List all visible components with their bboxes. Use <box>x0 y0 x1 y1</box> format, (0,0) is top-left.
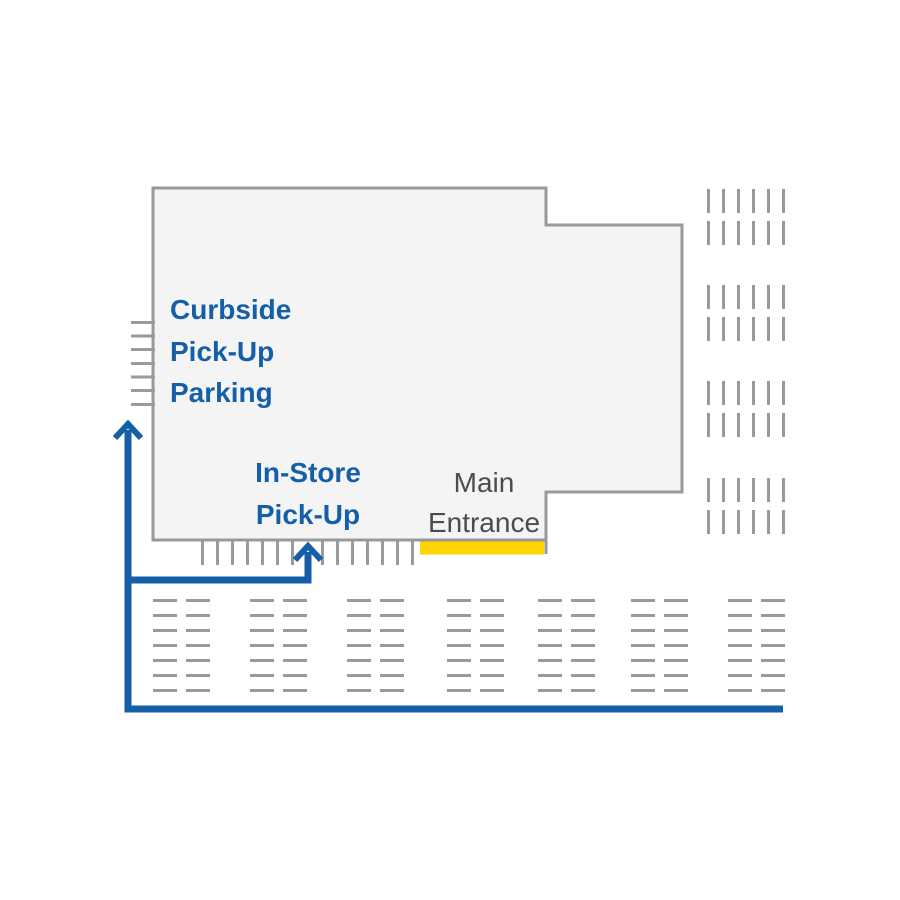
bottom-lot-parking-space-line <box>631 659 655 662</box>
in-store-parking-space-line <box>261 541 264 565</box>
bottom-lot-parking-space-line <box>761 674 785 677</box>
bottom-lot-parking-space-line <box>250 629 274 632</box>
bottom-lot-parking-space-line <box>631 599 655 602</box>
bottom-lot-parking-space-line <box>480 674 504 677</box>
bottom-lot-parking-space-line <box>761 644 785 647</box>
bottom-lot-parking-space-line <box>728 674 752 677</box>
right-lot-parking-space-line <box>707 413 710 437</box>
in-store-parking-space-line <box>351 541 354 565</box>
bottom-lot-parking-space-line <box>380 599 404 602</box>
bottom-lot-parking-space-line <box>538 614 562 617</box>
site-map-graphics <box>0 0 900 900</box>
bottom-lot-parking-space-line <box>664 614 688 617</box>
right-lot-parking-space-line <box>782 317 785 341</box>
curbside-parking-space-line <box>131 321 155 324</box>
main-entrance-label-line-2: Entrance <box>384 503 584 543</box>
bottom-lot-parking-space-line <box>538 629 562 632</box>
bottom-lot-parking-space-line <box>571 644 595 647</box>
bottom-lot-parking-space-line <box>728 629 752 632</box>
bottom-lot-parking-space-line <box>447 629 471 632</box>
bottom-lot-parking-space-line <box>728 614 752 617</box>
bottom-lot-parking-space-line <box>728 689 752 692</box>
right-lot-parking-space-line <box>767 317 770 341</box>
right-lot-parking-space-line <box>707 510 710 534</box>
bottom-lot-parking-space-line <box>480 644 504 647</box>
bottom-lot-parking-space-line <box>571 629 595 632</box>
in-store-parking-space-line <box>381 541 384 565</box>
in-store-parking-space-line <box>336 541 339 565</box>
right-lot-parking-space-line <box>737 381 740 405</box>
bottom-lot-parking-space-line <box>153 614 177 617</box>
in-store-parking-space-line <box>201 541 204 565</box>
main-entrance-label: Main Entrance <box>384 463 584 543</box>
in-store-parking-space-line <box>321 541 324 565</box>
bottom-lot-parking-space-line <box>250 659 274 662</box>
right-lot-parking-space-line <box>752 317 755 341</box>
bottom-lot-parking-space-line <box>153 674 177 677</box>
bottom-lot-parking-space-line <box>480 614 504 617</box>
bottom-lot-parking-space-line <box>480 689 504 692</box>
bottom-lot-parking-space-line <box>480 599 504 602</box>
right-lot-parking-space-line <box>767 510 770 534</box>
right-lot-parking-space-line <box>752 413 755 437</box>
bottom-lot-parking-space-line <box>664 644 688 647</box>
bottom-lot-parking-space-line <box>153 629 177 632</box>
right-lot-parking-space-line <box>752 221 755 245</box>
bottom-lot-parking-space-line <box>283 614 307 617</box>
bottom-lot-parking-space-line <box>664 659 688 662</box>
bottom-lot-parking-space-line <box>631 629 655 632</box>
right-lot-parking-space-line <box>752 189 755 213</box>
in-store-pickup-label: In-Store Pick-Up <box>208 452 408 536</box>
right-lot-parking-space-line <box>782 221 785 245</box>
bottom-lot-parking-space-line <box>153 689 177 692</box>
bottom-lot-parking-space-line <box>728 644 752 647</box>
right-lot-parking-space-line <box>782 510 785 534</box>
bottom-lot-parking-space-line <box>664 689 688 692</box>
right-lot-parking-space-line <box>767 413 770 437</box>
curbside-pickup-parking-label: Curbside Pick-Up Parking <box>170 289 291 414</box>
bottom-lot-parking-space-line <box>283 629 307 632</box>
bottom-lot-parking-space-line <box>571 674 595 677</box>
right-lot-parking-space-line <box>737 189 740 213</box>
bottom-lot-parking-space-line <box>347 599 371 602</box>
right-lot-parking-space-line <box>707 381 710 405</box>
right-lot-parking-space-line <box>722 285 725 309</box>
curbside-label-line-1: Curbside <box>170 289 291 331</box>
right-lot-parking-space-line <box>707 221 710 245</box>
right-lot-parking-space-line <box>707 317 710 341</box>
bottom-lot-parking-space-line <box>631 674 655 677</box>
curbside-parking-space-line <box>131 335 155 338</box>
in-store-parking-space-line <box>396 541 399 565</box>
bottom-lot-parking-space-line <box>153 599 177 602</box>
curbside-label-line-3: Parking <box>170 372 291 414</box>
bottom-lot-parking-space-line <box>538 659 562 662</box>
bottom-lot-parking-space-line <box>571 599 595 602</box>
bottom-lot-parking-space-line <box>761 629 785 632</box>
bottom-lot-parking-space-line <box>347 689 371 692</box>
bottom-lot-parking-space-line <box>283 659 307 662</box>
bottom-lot-parking-space-line <box>250 674 274 677</box>
main-entrance-label-line-1: Main <box>384 463 584 503</box>
right-lot-parking-space-line <box>737 510 740 534</box>
curbside-parking-space-line <box>131 389 155 392</box>
bottom-lot-parking-space-line <box>631 614 655 617</box>
right-lot-parking-space-line <box>767 381 770 405</box>
bottom-lot-parking-space-line <box>761 599 785 602</box>
in-store-parking-space-line <box>246 541 249 565</box>
bottom-lot-parking-space-line <box>631 689 655 692</box>
right-lot-parking-space-line <box>722 381 725 405</box>
right-lot-parking-space-line <box>767 478 770 502</box>
bottom-lot-parking-space-line <box>250 614 274 617</box>
bottom-lot-parking-space-line <box>283 689 307 692</box>
bottom-lot-parking-space-line <box>538 644 562 647</box>
right-lot-parking-space-line <box>737 413 740 437</box>
in-store-parking-space-line <box>366 541 369 565</box>
curbside-pickup-site-map: Curbside Pick-Up Parking In-Store Pick-U… <box>0 0 900 900</box>
bottom-lot-parking-space-line <box>761 659 785 662</box>
main-entrance-bar <box>420 542 544 555</box>
right-lot-parking-space-line <box>752 478 755 502</box>
bottom-lot-parking-space-line <box>761 614 785 617</box>
right-lot-parking-space-line <box>767 189 770 213</box>
bottom-lot-parking-space-line <box>186 689 210 692</box>
bottom-lot-parking-space-line <box>186 644 210 647</box>
bottom-lot-parking-space-line <box>480 659 504 662</box>
bottom-lot-parking-space-line <box>447 614 471 617</box>
bottom-lot-parking-space-line <box>347 644 371 647</box>
bottom-lot-parking-space-line <box>380 659 404 662</box>
bottom-lot-parking-space-line <box>631 644 655 647</box>
right-lot-parking-space-line <box>722 413 725 437</box>
right-lot-parking-space-line <box>752 381 755 405</box>
bottom-lot-parking-space-line <box>664 629 688 632</box>
right-lot-parking-space-line <box>767 221 770 245</box>
bottom-lot-parking-space-line <box>186 599 210 602</box>
bottom-lot-parking-space-line <box>347 659 371 662</box>
bottom-lot-parking-space-line <box>153 659 177 662</box>
in-store-parking-space-line <box>231 541 234 565</box>
right-lot-parking-space-line <box>707 189 710 213</box>
bottom-lot-parking-space-line <box>380 689 404 692</box>
bottom-lot-parking-space-line <box>447 689 471 692</box>
in-store-parking-space-line <box>291 541 294 565</box>
right-lot-parking-space-line <box>782 381 785 405</box>
bottom-lot-parking-space-line <box>571 689 595 692</box>
right-lot-parking-space-line <box>737 221 740 245</box>
bottom-lot-parking-space-line <box>761 689 785 692</box>
bottom-lot-parking-space-line <box>186 614 210 617</box>
bottom-lot-parking-space-line <box>186 674 210 677</box>
in-store-label-line-2: Pick-Up <box>208 494 408 536</box>
right-lot-parking-space-line <box>707 285 710 309</box>
in-store-parking-space-line <box>276 541 279 565</box>
right-lot-parking-space-line <box>782 285 785 309</box>
bottom-lot-parking-space-line <box>480 629 504 632</box>
curbside-parking-space-line <box>131 376 155 379</box>
right-lot-parking-space-line <box>752 285 755 309</box>
bottom-lot-parking-space-line <box>380 629 404 632</box>
bottom-lot-parking-space-line <box>538 599 562 602</box>
bottom-lot-parking-space-line <box>250 689 274 692</box>
bottom-lot-parking-space-line <box>571 614 595 617</box>
right-lot-parking-space-line <box>737 285 740 309</box>
bottom-lot-parking-space-line <box>538 674 562 677</box>
bottom-lot-parking-space-line <box>447 659 471 662</box>
bottom-lot-parking-space-line <box>186 629 210 632</box>
right-lot-parking-space-line <box>782 189 785 213</box>
bottom-lot-parking-space-line <box>380 674 404 677</box>
bottom-lot-parking-space-line <box>447 644 471 647</box>
bottom-lot-parking-space-line <box>728 659 752 662</box>
bottom-lot-parking-space-line <box>283 644 307 647</box>
bottom-lot-parking-space-line <box>347 614 371 617</box>
bottom-lot-parking-space-line <box>283 674 307 677</box>
right-lot-parking-space-line <box>737 317 740 341</box>
bottom-lot-parking-space-line <box>571 659 595 662</box>
right-lot-parking-space-line <box>767 285 770 309</box>
bottom-lot-parking-space-line <box>380 614 404 617</box>
bottom-lot-parking-space-line <box>347 629 371 632</box>
in-store-parking-space-line <box>411 541 414 565</box>
bottom-lot-parking-space-line <box>347 674 371 677</box>
curbside-parking-space-line <box>131 403 155 406</box>
bottom-lot-parking-space-line <box>538 689 562 692</box>
right-lot-parking-space-line <box>722 510 725 534</box>
right-lot-parking-space-line <box>782 478 785 502</box>
right-lot-parking-space-line <box>782 413 785 437</box>
bottom-lot-parking-space-line <box>186 659 210 662</box>
bottom-lot-parking-space-line <box>380 644 404 647</box>
right-lot-parking-space-line <box>722 317 725 341</box>
right-lot-parking-space-line <box>722 221 725 245</box>
right-lot-parking-space-line <box>722 478 725 502</box>
bottom-lot-parking-space-line <box>664 674 688 677</box>
bottom-lot-parking-space-line <box>728 599 752 602</box>
curbside-parking-space-line <box>131 348 155 351</box>
curbside-label-line-2: Pick-Up <box>170 331 291 373</box>
right-lot-parking-space-line <box>737 478 740 502</box>
right-lot-parking-space-line <box>722 189 725 213</box>
bottom-lot-parking-space-line <box>664 599 688 602</box>
curbside-parking-space-line <box>131 362 155 365</box>
right-lot-parking-space-line <box>752 510 755 534</box>
in-store-parking-space-line <box>216 541 219 565</box>
bottom-lot-parking-space-line <box>250 644 274 647</box>
right-lot-parking-space-line <box>707 478 710 502</box>
bottom-lot-parking-space-line <box>153 644 177 647</box>
bottom-lot-parking-space-line <box>447 599 471 602</box>
bottom-lot-parking-space-line <box>250 599 274 602</box>
bottom-lot-parking-space-line <box>447 674 471 677</box>
in-store-label-line-1: In-Store <box>208 452 408 494</box>
bottom-lot-parking-space-line <box>283 599 307 602</box>
